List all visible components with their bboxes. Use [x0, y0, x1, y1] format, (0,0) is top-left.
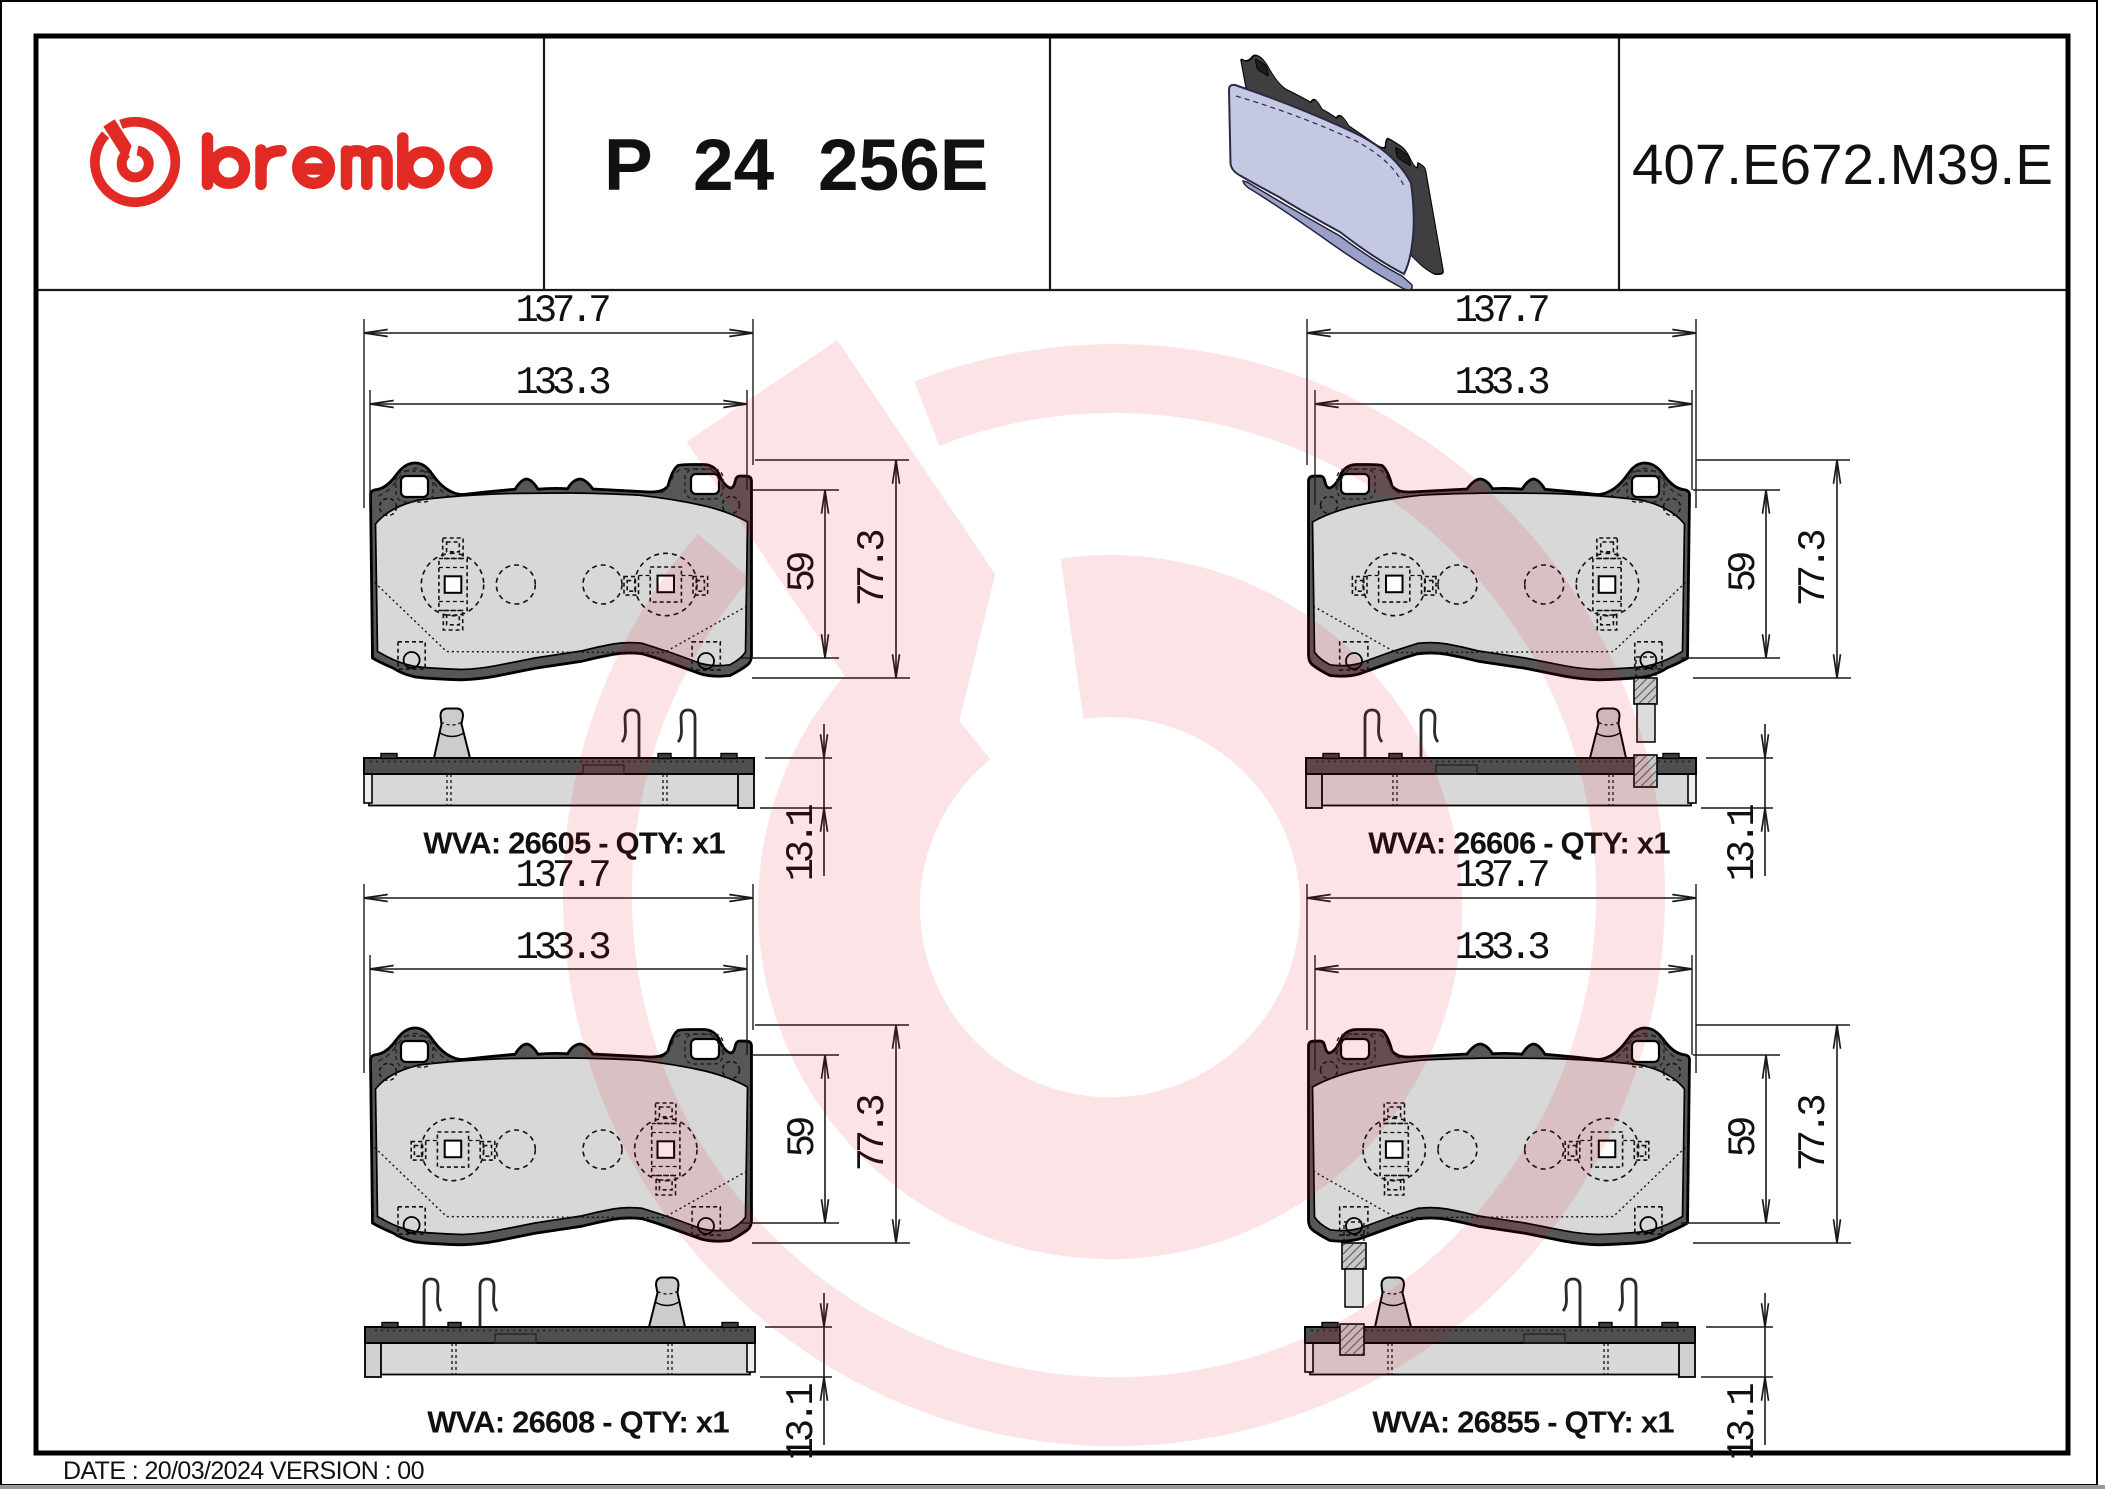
svg-text:133.3: 133.3	[515, 361, 609, 405]
svg-text:59: 59	[781, 1118, 825, 1157]
svg-text:13.1: 13.1	[1721, 1384, 1765, 1461]
svg-text:137.7: 137.7	[515, 289, 609, 333]
svg-text:133.3: 133.3	[1454, 926, 1548, 970]
svg-text:77.3: 77.3	[1792, 531, 1836, 607]
svg-text:59: 59	[1722, 1118, 1766, 1157]
svg-text:137.7: 137.7	[1454, 289, 1548, 333]
svg-text:407.E672.M39.E: 407.E672.M39.E	[1632, 133, 2053, 196]
svg-text:137.7: 137.7	[1454, 854, 1548, 898]
svg-text:WVA: 26608 - QTY: x1: WVA: 26608 - QTY: x1	[427, 1405, 729, 1440]
svg-text:133.3: 133.3	[1454, 361, 1548, 405]
svg-text:DATE : 20/03/2024 VERSION : 00: DATE : 20/03/2024 VERSION : 00	[63, 1457, 424, 1485]
svg-text:256E: 256E	[818, 125, 989, 206]
svg-text:P: P	[604, 125, 653, 206]
svg-text:77.3: 77.3	[1792, 1096, 1836, 1172]
svg-text:13.1: 13.1	[1721, 805, 1765, 882]
svg-text:WVA: 26855 - QTY: x1: WVA: 26855 - QTY: x1	[1372, 1405, 1674, 1440]
svg-text:24: 24	[693, 125, 775, 206]
svg-text:13.1: 13.1	[780, 1384, 824, 1461]
svg-text:59: 59	[1722, 553, 1766, 592]
